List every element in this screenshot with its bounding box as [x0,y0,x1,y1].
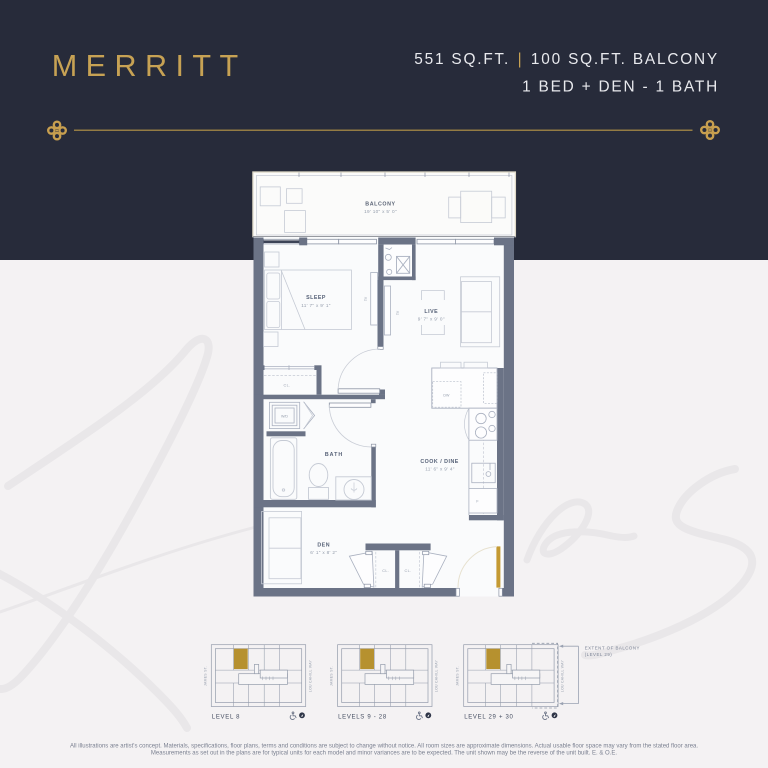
svg-text:(LEVEL 29): (LEVEL 29) [585,652,613,657]
svg-text:19' 10" x 5' 0": 19' 10" x 5' 0" [364,209,397,214]
svg-text:MERRITT: MERRITT [52,49,247,83]
svg-text:W/D: W/D [281,415,288,419]
svg-text:All illustrations are artist's: All illustrations are artist's concept. … [70,744,698,750]
svg-text:TV: TV [364,296,368,301]
svg-text:LIVE: LIVE [424,309,438,315]
svg-text:9' 7" x 9' 0": 9' 7" x 9' 0" [418,317,445,322]
svg-text:CL.: CL. [382,569,389,573]
svg-text:CL.: CL. [405,569,412,573]
svg-text:JAMES ST.: JAMES ST. [330,666,334,686]
svg-text:551 SQ.FT.|100 SQ.FT. BALCONY: 551 SQ.FT.|100 SQ.FT. BALCONY [414,51,719,68]
svg-text:Measurements as set out in the: Measurements as set out in the plans are… [151,751,617,757]
svg-text:11' 7" x 9' 1": 11' 7" x 9' 1" [301,303,331,308]
svg-text:6' 1" x 8' 2": 6' 1" x 8' 2" [310,550,337,555]
svg-text:BALCONY: BALCONY [365,202,395,208]
svg-text:COOK / DINE: COOK / DINE [420,459,458,465]
svg-text:DW: DW [443,393,450,397]
svg-text:JAMES ST.: JAMES ST. [203,666,207,686]
svg-text:LOU CAHILL WAY: LOU CAHILL WAY [435,659,439,692]
svg-text:JAMES ST.: JAMES ST. [456,666,460,686]
svg-text:LEVEL 29 + 30: LEVEL 29 + 30 [464,714,513,720]
svg-text:SLEEP: SLEEP [306,295,326,301]
svg-text:LOU CAHILL WAY: LOU CAHILL WAY [561,659,565,692]
svg-text:1 BED + DEN - 1 BATH: 1 BED + DEN - 1 BATH [522,79,719,96]
svg-text:LEVELS 9 - 28: LEVELS 9 - 28 [338,714,387,720]
svg-text:11' 6" x 9' 4": 11' 6" x 9' 4" [425,467,455,472]
svg-text:LEVEL 8: LEVEL 8 [212,714,240,720]
svg-text:BATH: BATH [325,452,343,458]
svg-text:TV: TV [396,310,400,315]
svg-text:EXTENT OF BALCONY: EXTENT OF BALCONY [585,646,640,651]
svg-text:DEN: DEN [317,543,330,549]
svg-text:LOU CAHILL WAY: LOU CAHILL WAY [308,659,312,692]
svg-text:CL.: CL. [283,383,290,387]
